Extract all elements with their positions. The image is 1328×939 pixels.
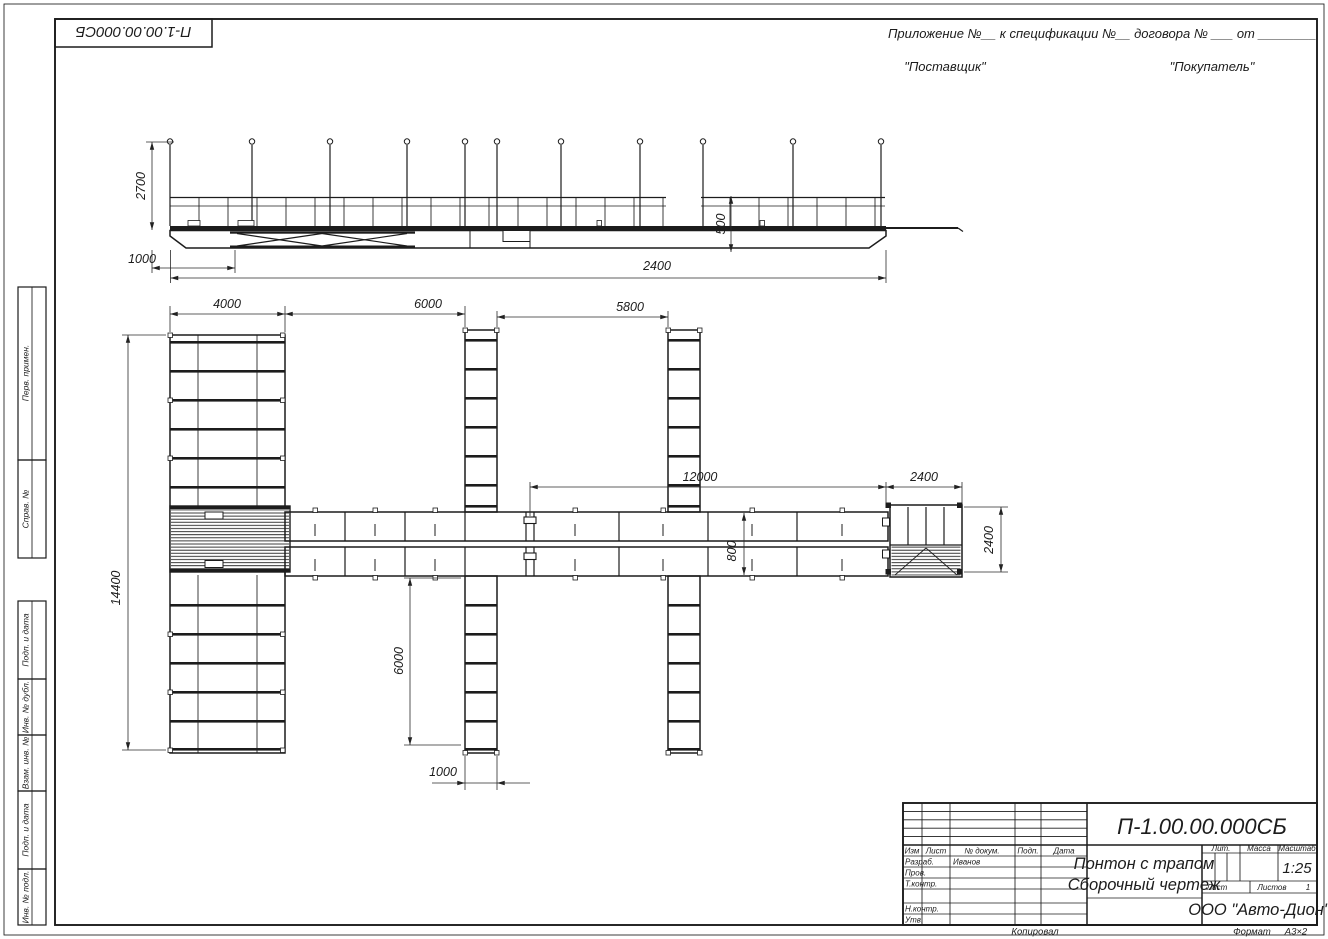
dim-gap1: 6000: [285, 297, 465, 327]
end-platform: [883, 503, 963, 578]
drawing-sheet: П-1.00.00.000СБ Приложение №__ к специфи…: [0, 0, 1328, 939]
doc-name-line2: Сборочный чертеж: [1068, 876, 1221, 894]
dim-block-width: 4000: [170, 297, 285, 332]
title-block: Изм Лист № докум. Подп. Дата Разраб. Ива…: [903, 803, 1328, 925]
margin-box-label: Взам. инв. №: [21, 737, 31, 790]
svg-text:1000: 1000: [429, 765, 457, 779]
margin-box-label: Справ. №: [21, 490, 31, 529]
deck: [170, 226, 886, 230]
main-ramp: [170, 506, 290, 572]
dim-end-width: 2400: [964, 507, 1008, 572]
svg-text:2400: 2400: [642, 259, 671, 273]
dim-side-total: 2400: [171, 250, 887, 283]
contract-header: Приложение №__ к спецификации №__ догово…: [888, 26, 1316, 74]
dim-posts-height: 2700: [134, 142, 174, 230]
sheets-value: 1: [1306, 883, 1310, 892]
svg-text:14400: 14400: [109, 571, 123, 606]
dim-total-length: 14400: [109, 335, 166, 750]
svg-text:500: 500: [714, 214, 728, 235]
doc-name-line1: Понтон с трапом: [1074, 855, 1215, 873]
outer-border: [4, 4, 1324, 935]
margin-box-label: Подп. и дата: [21, 613, 31, 666]
margin-box-label: Инв. № подл.: [21, 871, 31, 924]
col-doc: № докум.: [964, 847, 999, 856]
drawing-canvas: П-1.00.00.000СБ Приложение №__ к специфи…: [0, 0, 1328, 939]
row-label: Н.контр.: [905, 905, 939, 914]
col-data: Дата: [1052, 847, 1075, 856]
dim-finger-width: 1000: [429, 756, 530, 790]
scale-label: Масштаб: [1278, 844, 1316, 853]
top-left-stamp: П-1.00.00.000СБ: [55, 19, 212, 47]
stamp-designation: П-1.00.00.000СБ: [75, 23, 191, 40]
copied-label: Копировал: [1011, 927, 1059, 938]
row-label: Т.контр.: [905, 880, 937, 889]
scale-value: 1:25: [1282, 860, 1312, 877]
footer: Копировал Формат А3×2: [1011, 927, 1308, 938]
finger-pier-bottom-2: [666, 576, 702, 755]
row-label: Пров.: [905, 869, 926, 878]
company-name: ООО "Авто-Дион": [1188, 901, 1328, 919]
dim-left-offset: 1000: [128, 250, 235, 273]
row-value: Иванов: [953, 858, 980, 867]
col-podp: Подп.: [1017, 847, 1038, 856]
left-margin-boxes: Перв. примен. Справ. № Подп. и дата Инв.…: [18, 287, 46, 925]
svg-text:12000: 12000: [683, 470, 718, 484]
format-value: А3×2: [1284, 927, 1308, 938]
supplier-label: "Поставщик": [904, 59, 987, 74]
svg-text:6000: 6000: [392, 647, 406, 675]
col-list: Лист: [925, 847, 947, 856]
scissor-lift: [230, 232, 415, 248]
finger-pier-top-2: [666, 328, 702, 512]
svg-text:6000: 6000: [414, 297, 442, 311]
format-label: Формат: [1233, 927, 1271, 938]
dim-walkway-width: 800: [725, 513, 744, 575]
plan-view: 4000 6000 5800 12000 2400 144: [109, 297, 1008, 790]
finger-pier-bottom-1: [463, 576, 499, 755]
svg-text:2400: 2400: [982, 526, 996, 555]
walkway: [285, 508, 888, 580]
dim-finger-length: 6000: [392, 578, 461, 745]
appendix-line: Приложение №__ к спецификации №__ догово…: [888, 26, 1316, 41]
margin-box-label: Перв. примен.: [21, 345, 31, 402]
col-izm: Изм: [905, 847, 920, 856]
sheets-label: Листов: [1256, 883, 1286, 892]
svg-text:2700: 2700: [134, 172, 148, 201]
dim-freeboard: 500: [714, 196, 731, 252]
svg-text:800: 800: [725, 541, 739, 562]
buyer-label: "Покупатель": [1170, 59, 1256, 74]
side-view: 2700 1000 500 2400: [128, 139, 963, 283]
margin-box-label: Инв. № дубл.: [21, 681, 31, 733]
svg-text:2400: 2400: [909, 470, 938, 484]
mass-label: Масса: [1247, 844, 1271, 853]
sheet-label: Лист: [1206, 883, 1228, 892]
lit-label: Лит.: [1211, 844, 1231, 853]
margin-box-label: Подп. и дата: [21, 803, 31, 856]
svg-text:4000: 4000: [213, 297, 241, 311]
dim-end-section: 2400: [886, 470, 962, 503]
finger-pier-top-1: [463, 328, 499, 512]
dim-gap2: 5800: [497, 300, 668, 327]
row-label: Утв.: [904, 916, 923, 925]
svg-text:5800: 5800: [616, 300, 644, 314]
row-label: Разраб.: [905, 858, 934, 867]
designation: П-1.00.00.000СБ: [1117, 814, 1287, 839]
dim-walkway-length: 12000: [530, 470, 886, 516]
svg-text:1000: 1000: [128, 252, 156, 266]
